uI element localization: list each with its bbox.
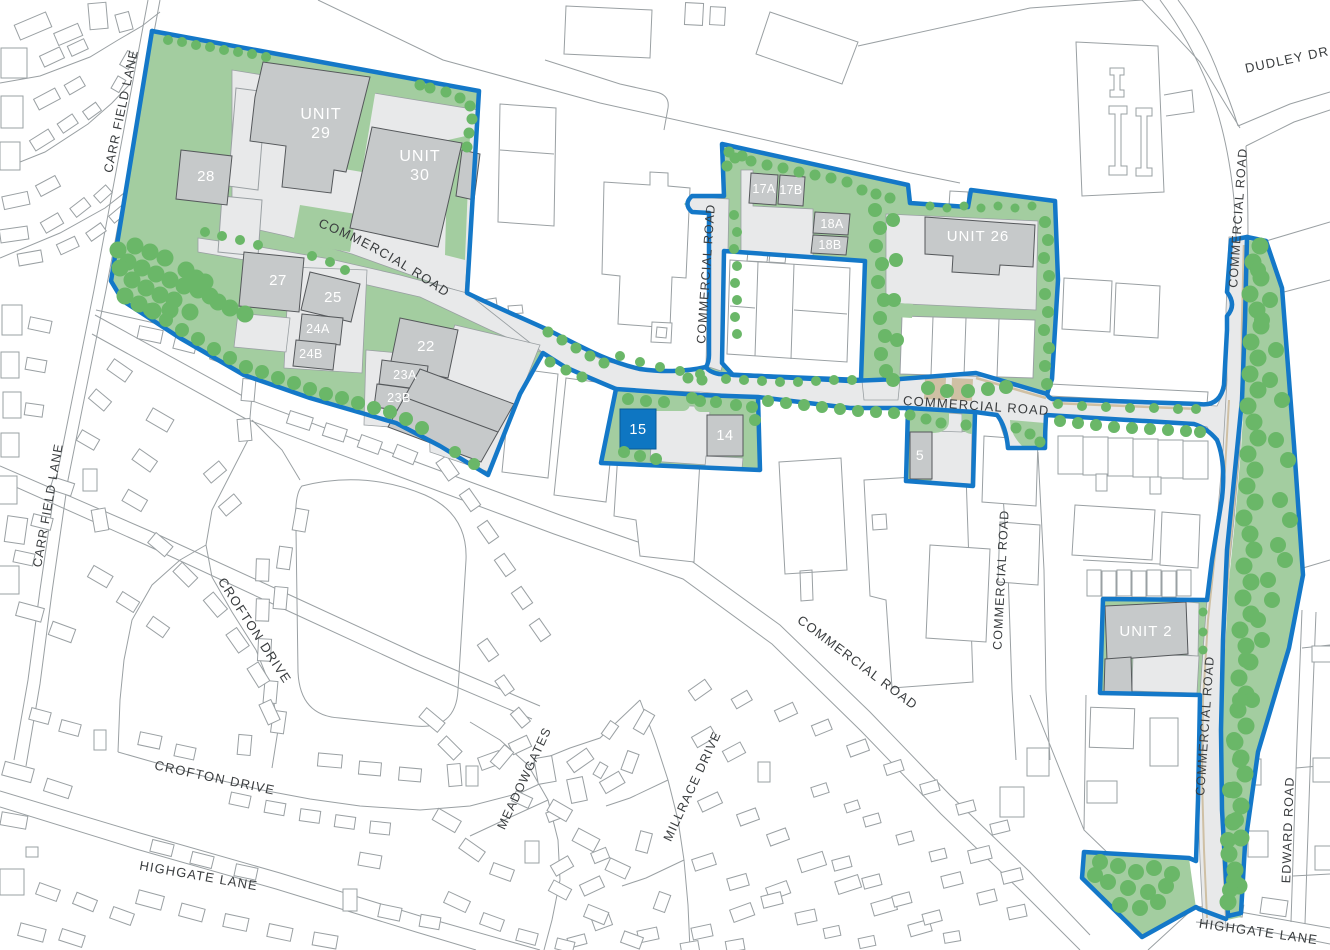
svg-text:18A: 18A <box>820 217 844 231</box>
svg-text:15: 15 <box>629 422 646 438</box>
svg-text:17A: 17A <box>752 182 776 196</box>
svg-text:UNIT 2: UNIT 2 <box>1119 623 1172 640</box>
svg-text:23B: 23B <box>387 391 411 405</box>
svg-text:18B: 18B <box>818 238 841 252</box>
svg-text:5: 5 <box>916 447 924 463</box>
svg-text:UNIT 26: UNIT 26 <box>947 228 1010 245</box>
svg-text:22: 22 <box>417 338 435 355</box>
svg-text:25: 25 <box>324 289 342 306</box>
svg-text:14: 14 <box>716 428 733 444</box>
svg-text:24B: 24B <box>299 347 323 361</box>
svg-text:29: 29 <box>311 125 331 142</box>
svg-text:27: 27 <box>269 272 287 289</box>
svg-text:UNIT: UNIT <box>300 106 341 123</box>
svg-text:24A: 24A <box>306 322 330 336</box>
svg-text:30: 30 <box>410 167 430 184</box>
svg-text:17B: 17B <box>779 183 802 197</box>
svg-text:23A: 23A <box>393 368 417 382</box>
svg-text:UNIT: UNIT <box>399 148 440 165</box>
svg-text:28: 28 <box>197 168 215 185</box>
